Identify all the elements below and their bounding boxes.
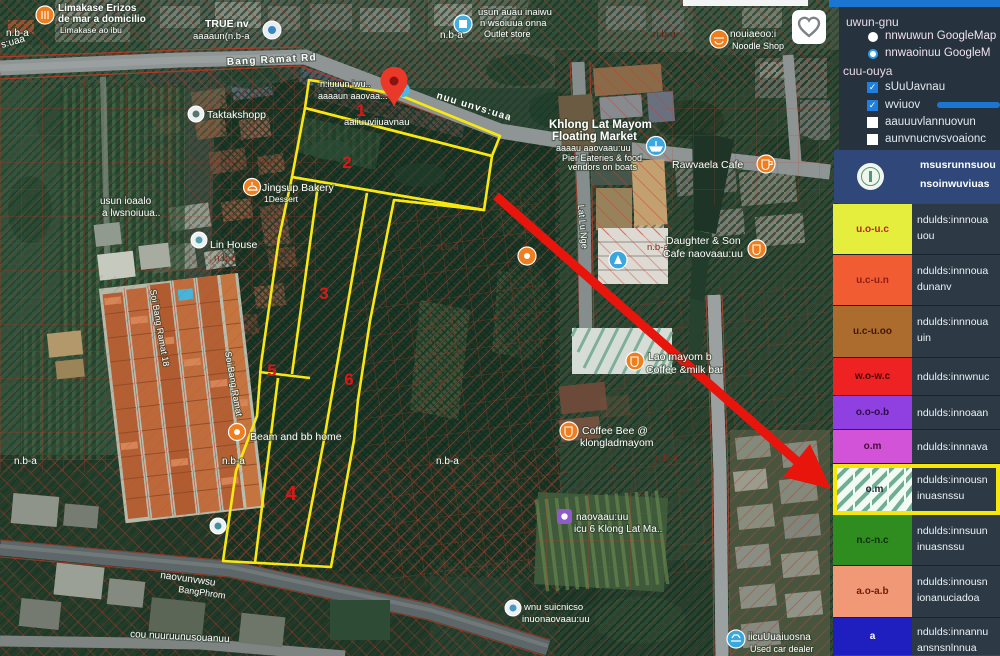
svg-text:Jingsup Bakery: Jingsup Bakery <box>262 182 335 194</box>
svg-text:Used car dealer: Used car dealer <box>750 644 814 654</box>
svg-text:Coffee &milk bar: Coffee &milk bar <box>646 364 724 376</box>
svg-text:aaiiuuviiuavnau: aaiiuuviiuavnau <box>344 117 410 128</box>
svg-text:Taktakshopp: Taktakshopp <box>207 109 266 121</box>
svg-text:n.b-a: n.b-a <box>653 29 676 40</box>
svg-text:aaaau aaovaau:uu: aaaau aaovaau:uu <box>556 143 631 153</box>
svg-text:Cafe naovaau:uu: Cafe naovaau:uu <box>663 248 743 260</box>
svg-text:Rawvaela Cafe: Rawvaela Cafe <box>672 159 743 171</box>
svg-text:4: 4 <box>285 483 297 505</box>
svg-text:Limakase ao ibu: Limakase ao ibu <box>60 25 122 35</box>
svg-text:Daughter & Son: Daughter & Son <box>666 235 741 247</box>
svg-text:n.b-a: n.b-a <box>222 456 245 467</box>
svg-text:2: 2 <box>342 153 351 172</box>
svg-text:wnu suicnicso: wnu suicnicso <box>523 602 583 613</box>
svg-text:usun auau inaiwu: usun auau inaiwu <box>478 7 552 18</box>
svg-text:n:iuuun iwu..: n:iuuun iwu.. <box>320 79 371 89</box>
svg-text:de mar a domicilio: de mar a domicilio <box>58 14 146 25</box>
svg-text:Beam and bb home: Beam and bb home <box>250 431 342 443</box>
svg-text:n.b-a: n.b-a <box>436 456 459 467</box>
svg-text:nouiaeoo:i: nouiaeoo:i <box>730 29 776 40</box>
svg-text:n.b-a: n.b-a <box>647 242 669 253</box>
svg-text:Khlong Lat Mayom: Khlong Lat Mayom <box>549 119 652 131</box>
svg-text:n wsoiuua onna: n wsoiuua onna <box>480 18 547 29</box>
svg-text:naovaau:uu: naovaau:uu <box>576 512 628 523</box>
svg-text:1Dessert: 1Dessert <box>264 194 299 204</box>
svg-text:Noodle Shop: Noodle Shop <box>732 41 784 51</box>
svg-text:Coffee Bee @: Coffee Bee @ <box>582 425 648 437</box>
svg-text:6: 6 <box>344 370 353 389</box>
svg-text:iicuUuaiuosna: iicuUuaiuosna <box>748 632 811 643</box>
svg-text:n.b-a: n.b-a <box>437 242 459 253</box>
svg-text:Limakase Erizos: Limakase Erizos <box>58 3 137 14</box>
svg-text:aaaaun aaovaa...: aaaaun aaovaa... <box>318 91 388 101</box>
svg-text:inuonaovaau:uu: inuonaovaau:uu <box>522 614 590 625</box>
svg-text:n.b-a: n.b-a <box>440 30 463 41</box>
svg-text:Lin House: Lin House <box>210 239 257 251</box>
svg-text:a lwsnoiuua..: a lwsnoiuua.. <box>102 208 160 219</box>
svg-text:icu 6 Klong Lat Ma..: icu 6 Klong Lat Ma.. <box>574 524 662 535</box>
svg-text:klongladmayom: klongladmayom <box>580 437 654 449</box>
svg-text:n.b-a: n.b-a <box>14 456 37 467</box>
svg-text:5: 5 <box>267 361 276 380</box>
svg-text:vendors on boats: vendors on boats <box>568 162 638 172</box>
svg-text:aaaaun(n.b-a: aaaaun(n.b-a <box>193 31 250 42</box>
svg-text:Lao mayom b: Lao mayom b <box>648 351 712 363</box>
svg-text:usun ioaalo: usun ioaalo <box>100 196 152 207</box>
svg-text:Floating Market: Floating Market <box>552 131 637 143</box>
svg-text:TRUE nv: TRUE nv <box>205 18 249 30</box>
svg-text:n.b-a: n.b-a <box>214 253 237 264</box>
svg-text:n.b-a: n.b-a <box>655 453 678 464</box>
svg-text:3: 3 <box>319 284 328 303</box>
svg-text:Outlet store: Outlet store <box>484 29 531 39</box>
